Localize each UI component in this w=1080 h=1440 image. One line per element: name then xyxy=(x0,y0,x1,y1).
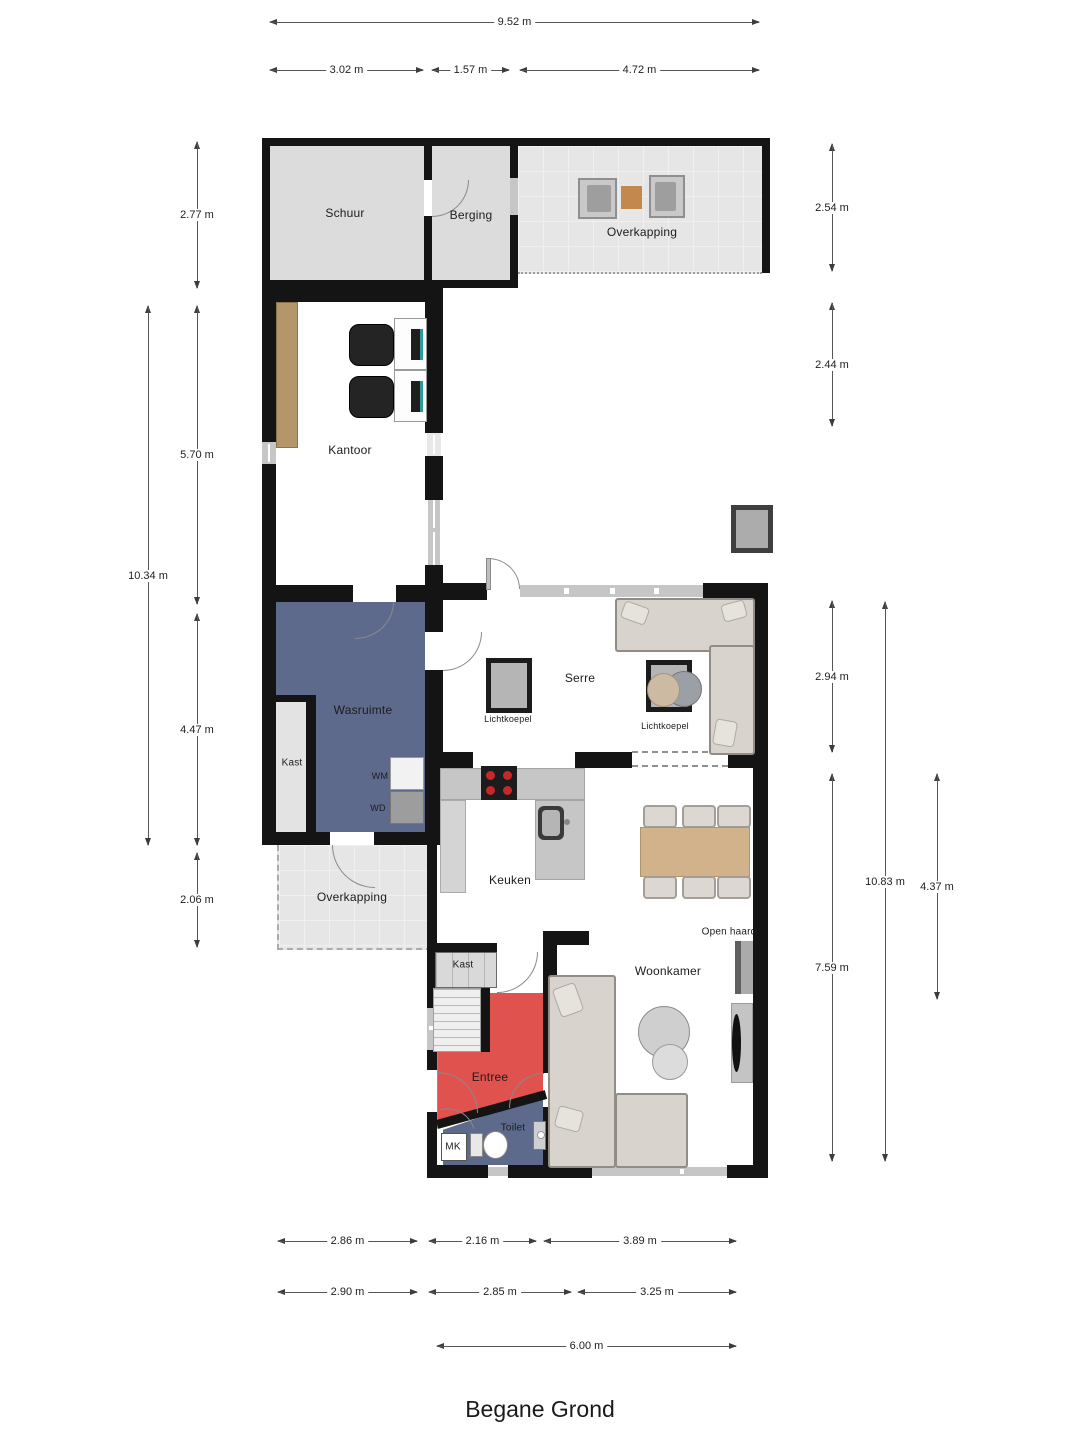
wall xyxy=(727,1165,768,1178)
wall xyxy=(425,302,443,433)
washing-machine xyxy=(390,757,424,790)
dim-left-total: 10.34 m xyxy=(142,305,154,846)
wall xyxy=(262,146,270,288)
room-label-keuken: Keuken xyxy=(489,873,531,887)
monitor xyxy=(411,329,423,360)
toilet-sink xyxy=(533,1121,546,1150)
label-wm: WM xyxy=(372,771,388,781)
wall xyxy=(425,456,443,500)
dim-bottom-2: 2.16 m xyxy=(428,1235,537,1247)
wall xyxy=(262,832,330,845)
window xyxy=(428,500,440,565)
wall xyxy=(440,752,473,768)
dim-right-2: 2.44 m xyxy=(826,302,838,427)
label-open-haard: Open haard xyxy=(702,927,757,938)
wall xyxy=(425,605,443,632)
room-label-woonkamer: Woonkamer xyxy=(635,964,701,978)
wall xyxy=(374,832,443,845)
coffee-table-circle xyxy=(652,1044,688,1080)
dim-top-3: 4.72 m xyxy=(519,64,760,76)
room-label-kast-hal: Kast xyxy=(453,960,474,971)
dim-right-3: 2.94 m xyxy=(826,600,838,753)
room-label-serre: Serre xyxy=(565,671,595,685)
side-table xyxy=(619,184,644,211)
wall xyxy=(424,146,432,180)
monitor xyxy=(411,381,423,412)
passage xyxy=(510,178,518,215)
room-label-overkapping-bottom: Overkapping xyxy=(317,890,387,904)
sofa-woonkamer xyxy=(615,1093,688,1168)
wall xyxy=(427,583,487,600)
window xyxy=(488,1167,508,1176)
dim-right-total: 10.83 m xyxy=(879,601,891,1162)
dining-chair xyxy=(682,805,716,828)
dining-chair xyxy=(643,876,677,899)
page-title: Begane Grond xyxy=(0,1396,1080,1423)
door-arc-serre-buiten xyxy=(488,558,520,589)
wall xyxy=(306,702,316,832)
wall xyxy=(262,302,276,442)
kitchen-cabinet xyxy=(440,800,466,893)
door-arc-wasruimte-serre xyxy=(443,632,482,671)
dryer xyxy=(390,791,424,824)
room-label-kast-wasruimte: Kast xyxy=(282,758,303,769)
tv-screen xyxy=(732,1014,741,1072)
label-wd: WD xyxy=(370,803,385,813)
dim-left-2: 5.70 m xyxy=(191,305,203,605)
wall xyxy=(481,988,490,1052)
skylight-lichtkoepel xyxy=(486,658,532,713)
wall xyxy=(753,600,768,1178)
wall xyxy=(262,138,770,146)
wall xyxy=(262,280,518,288)
dining-chair xyxy=(643,805,677,828)
dim-left-1: 2.77 m xyxy=(191,141,203,289)
office-chair xyxy=(349,324,394,366)
label-lichtkoepel-1: Lichtkoepel xyxy=(484,714,532,724)
window-woonkamer xyxy=(592,1167,727,1176)
wall xyxy=(575,752,632,768)
room-label-schuur: Schuur xyxy=(325,206,364,220)
room-label-wasruimte: Wasruimte xyxy=(334,703,393,717)
lounge-chair xyxy=(578,178,617,219)
dim-bottom-6: 3.25 m xyxy=(577,1286,737,1298)
wall xyxy=(424,216,432,280)
dim-right-5: 4.37 m xyxy=(931,773,943,1000)
floorplan-begane-grond: Schuur Berging Overkapping Kantoor Wasru… xyxy=(0,0,1080,1440)
dining-chair xyxy=(717,876,751,899)
dim-bottom-total: 6.00 m xyxy=(436,1340,737,1352)
label-lichtkoepel-2: Lichtkoepel xyxy=(641,721,689,731)
wall xyxy=(262,605,276,845)
room-label-entree: Entree xyxy=(472,1070,509,1084)
dim-bottom-4: 2.90 m xyxy=(277,1286,418,1298)
room-label-overkapping-top: Overkapping xyxy=(607,225,677,239)
stairs xyxy=(433,988,481,1052)
open-passage-dashed xyxy=(632,765,728,767)
room-label-toilet: Toilet xyxy=(501,1123,526,1134)
room-label-berging: Berging xyxy=(450,208,493,222)
window xyxy=(262,442,276,464)
dim-right-4: 7.59 m xyxy=(826,773,838,1162)
wall xyxy=(510,146,518,178)
dining-table xyxy=(640,827,750,877)
toilet-bowl xyxy=(483,1131,508,1159)
sink xyxy=(538,806,564,840)
round-table xyxy=(647,673,680,707)
fireplace xyxy=(735,941,753,994)
wall xyxy=(262,288,443,302)
dim-bottom-1: 2.86 m xyxy=(277,1235,418,1247)
wall xyxy=(510,215,518,280)
dim-right-1: 2.54 m xyxy=(826,143,838,272)
dim-top-2: 1.57 m xyxy=(431,64,510,76)
skylight-square xyxy=(731,505,773,553)
dining-chair xyxy=(717,805,751,828)
wall xyxy=(262,464,276,605)
room-label-kantoor: Kantoor xyxy=(328,443,371,457)
door-arc-hal-entree xyxy=(497,952,538,993)
pillow xyxy=(712,718,738,747)
dim-bottom-5: 2.85 m xyxy=(428,1286,572,1298)
dim-bottom-3: 3.89 m xyxy=(543,1235,737,1247)
dining-chair xyxy=(682,876,716,899)
dim-top-total: 9.52 m xyxy=(269,16,760,28)
wall xyxy=(427,1165,488,1178)
door-leaf xyxy=(486,558,491,590)
window-serre xyxy=(520,585,703,597)
label-mk: MK xyxy=(445,1142,460,1153)
cabinet-wood xyxy=(276,302,298,448)
wall xyxy=(762,146,770,273)
toilet-cistern xyxy=(470,1133,483,1157)
wall xyxy=(276,695,316,702)
dim-left-3: 4.47 m xyxy=(191,613,203,846)
window xyxy=(427,433,441,456)
wall xyxy=(427,943,497,952)
cooktop xyxy=(481,766,517,800)
dim-top-1: 3.02 m xyxy=(269,64,424,76)
lounge-chair xyxy=(649,175,685,218)
office-chair xyxy=(349,376,394,418)
wall xyxy=(262,585,353,602)
dim-left-4: 2.06 m xyxy=(191,852,203,948)
wall xyxy=(427,1050,437,1070)
